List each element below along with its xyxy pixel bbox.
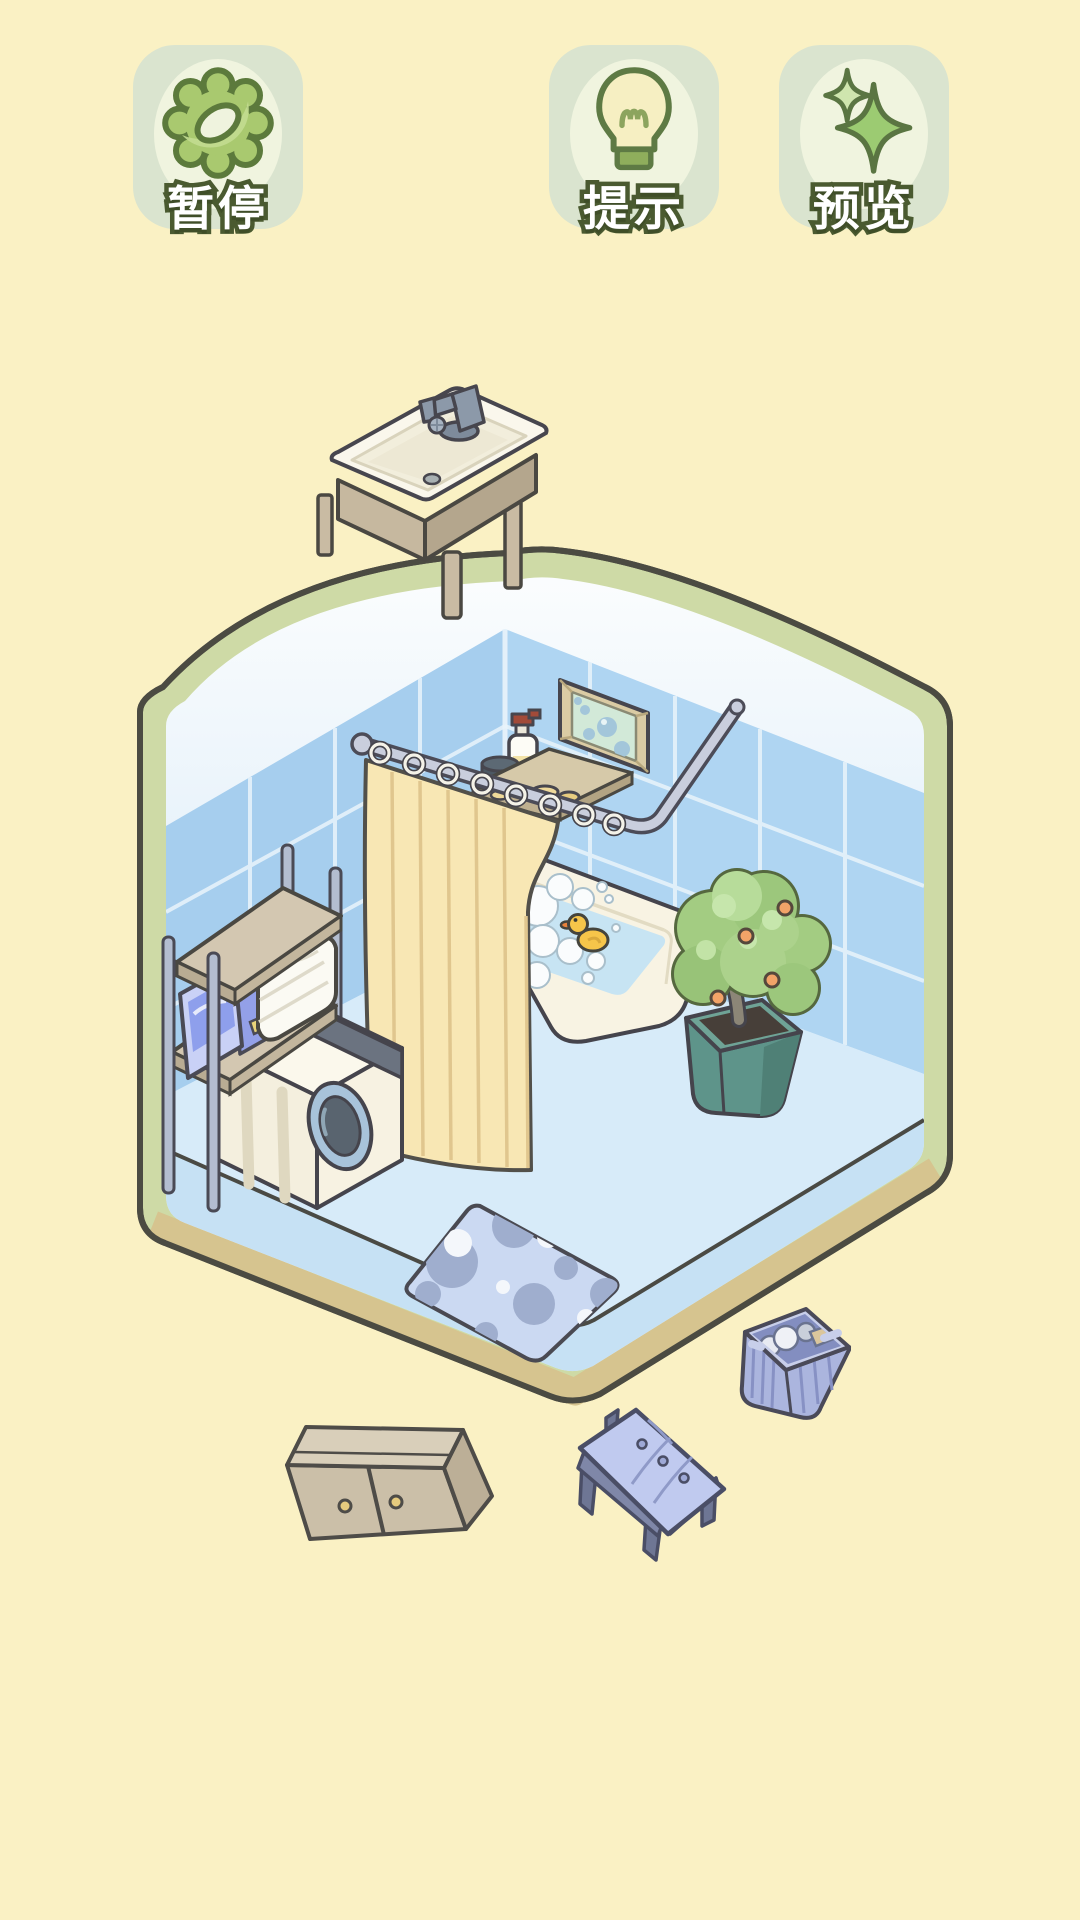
sink-leg xyxy=(318,495,332,555)
sink-drain xyxy=(424,474,440,484)
game-scene xyxy=(0,0,1080,1920)
rod-end-cap xyxy=(730,700,744,714)
preview-button-label: 预览 xyxy=(759,170,969,239)
cabinet-knob xyxy=(339,1500,351,1512)
lightbulb-icon xyxy=(574,63,694,183)
cabinet-top xyxy=(287,1427,463,1468)
sink-leg xyxy=(505,500,521,588)
gear-icon xyxy=(158,63,278,183)
sparkle-stars-icon xyxy=(804,63,924,183)
laundry-basket[interactable] xyxy=(742,1309,849,1418)
pause-button-label: 暂停 xyxy=(113,170,323,239)
cabinet-knob xyxy=(390,1496,402,1508)
rack-pole xyxy=(208,953,219,1211)
sink-leg xyxy=(443,552,461,618)
pause-button[interactable]: 暂停 xyxy=(133,45,303,231)
hint-button[interactable]: 提示 xyxy=(549,45,719,231)
storage-cabinet[interactable] xyxy=(287,1427,492,1539)
basket-handle-slot xyxy=(752,1344,761,1347)
preview-button[interactable]: 预览 xyxy=(779,45,949,231)
rack-pole xyxy=(163,937,174,1193)
basket-handle-slot xyxy=(824,1333,838,1338)
hint-button-label: 提示 xyxy=(529,170,739,239)
tufted-bench[interactable] xyxy=(578,1410,724,1560)
